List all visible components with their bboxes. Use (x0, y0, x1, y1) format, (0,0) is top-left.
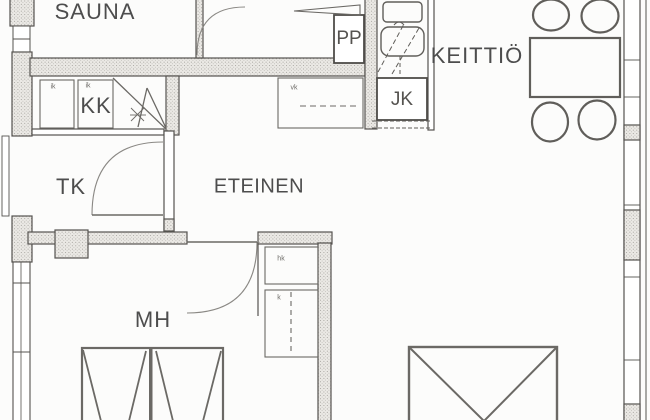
section-arrow (294, 5, 360, 15)
door-arc-mh (187, 242, 257, 313)
room-label-tk: TK (56, 174, 86, 200)
room-label-sauna: SAUNA (55, 0, 136, 25)
floor-plan: SAUNA KK TK ETEINEN KEITTIÖ MH PP JK ik … (0, 0, 650, 420)
room-label-mh: MH (135, 307, 171, 333)
closet-symbol: vk (291, 85, 298, 92)
chair (579, 101, 616, 140)
sink-basin (383, 2, 422, 22)
closet-symbol: hk (277, 256, 284, 263)
interior-walls (28, 0, 434, 420)
chair (533, 0, 569, 31)
closet-symbol: k (277, 295, 281, 302)
closet-symbol: ik (85, 83, 90, 90)
door-arc-sauna (197, 7, 245, 55)
room-label-eteinen: ETEINEN (214, 176, 304, 199)
dining-set (530, 0, 620, 142)
closets-hall (265, 78, 363, 357)
closet-symbol: ik (50, 84, 55, 91)
chair (532, 103, 568, 142)
door-arc-tk (92, 142, 163, 215)
outer-wall-right (624, 0, 646, 420)
room-label-kk: KK (80, 93, 111, 119)
bed-double-living (409, 347, 557, 420)
appliance-label-pp: PP (336, 28, 361, 50)
plan-geometry (0, 0, 650, 420)
appliance-label-jk: JK (391, 89, 413, 111)
dining-table (530, 38, 620, 97)
outer-wall-left (2, 0, 34, 420)
chair (582, 0, 619, 33)
closet-box-hk (265, 247, 318, 284)
room-label-keittio: KEITTIÖ (431, 43, 524, 69)
closet-box (40, 80, 74, 128)
